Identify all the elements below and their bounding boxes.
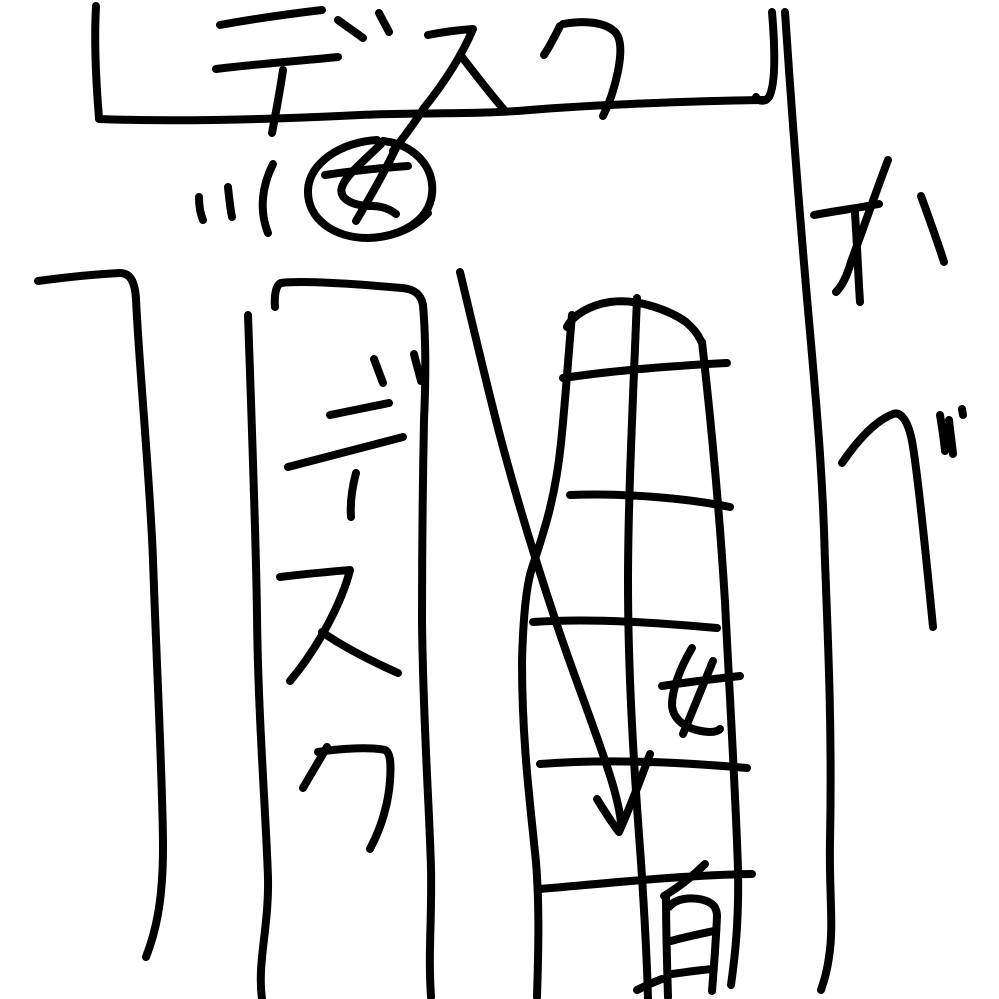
label-column-de-h1 [330,403,389,415]
label-wall-be-dakuten-2 [949,420,953,454]
label-top-desk-dakuten-2 [379,13,389,32]
label-top-desk-su-leg [462,57,505,111]
label-wall-be-dot [962,409,963,415]
person-circle-onna-3 [325,166,408,175]
shelf-right-edge [702,342,738,985]
person-shelf-onna-2 [683,661,713,734]
drawing-svg [0,0,999,999]
speed-line-1 [199,197,203,220]
label-column-ku-2 [318,748,390,849]
label-wall-ka-4 [921,196,944,262]
column-desk-top-right-edge [275,282,431,997]
label-wall-ka-3 [855,213,860,302]
top-desk-left-edge [95,6,99,118]
bottom-kanji-stroke-5 [671,931,714,941]
wall-line [785,12,831,990]
label-column-su-leg [322,632,398,673]
drawing-canvas[interactable]: デスク 女 デスク かべ 女 有 [0,0,999,999]
label-top-desk-ku-1 [544,26,560,55]
label-top-desk-su [393,29,473,151]
top-desk-right-hook [756,12,774,101]
label-wall-be-dakuten-1 [940,415,945,451]
label-column-de-h2 [288,437,403,467]
label-column-de-v [351,473,356,517]
label-top-desk-de-v [272,70,283,133]
label-column-dakuten-2 [414,354,421,381]
bottom-kanji-stroke-7 [637,979,662,990]
label-wall-be [842,413,933,627]
bottom-kanji-stroke-6 [672,969,713,974]
label-top-desk-dakuten-1 [338,20,363,38]
left-desk-outline [38,273,163,957]
speed-line-2 [228,187,232,217]
speed-line-3 [263,164,273,233]
label-column-su [280,570,350,681]
shelf-shelf-line-2 [570,495,730,507]
label-top-desk-de-h2 [216,57,338,69]
shelf-center-vertical [628,298,648,999]
bottom-kanji-stroke-2 [666,896,668,997]
column-desk-left-edge [248,315,268,999]
label-top-desk-de-h1 [220,10,322,25]
person-circle-overlap [396,213,428,233]
bottom-kanji-stroke-3 [669,898,717,916]
label-column-dakuten-1 [374,359,383,383]
